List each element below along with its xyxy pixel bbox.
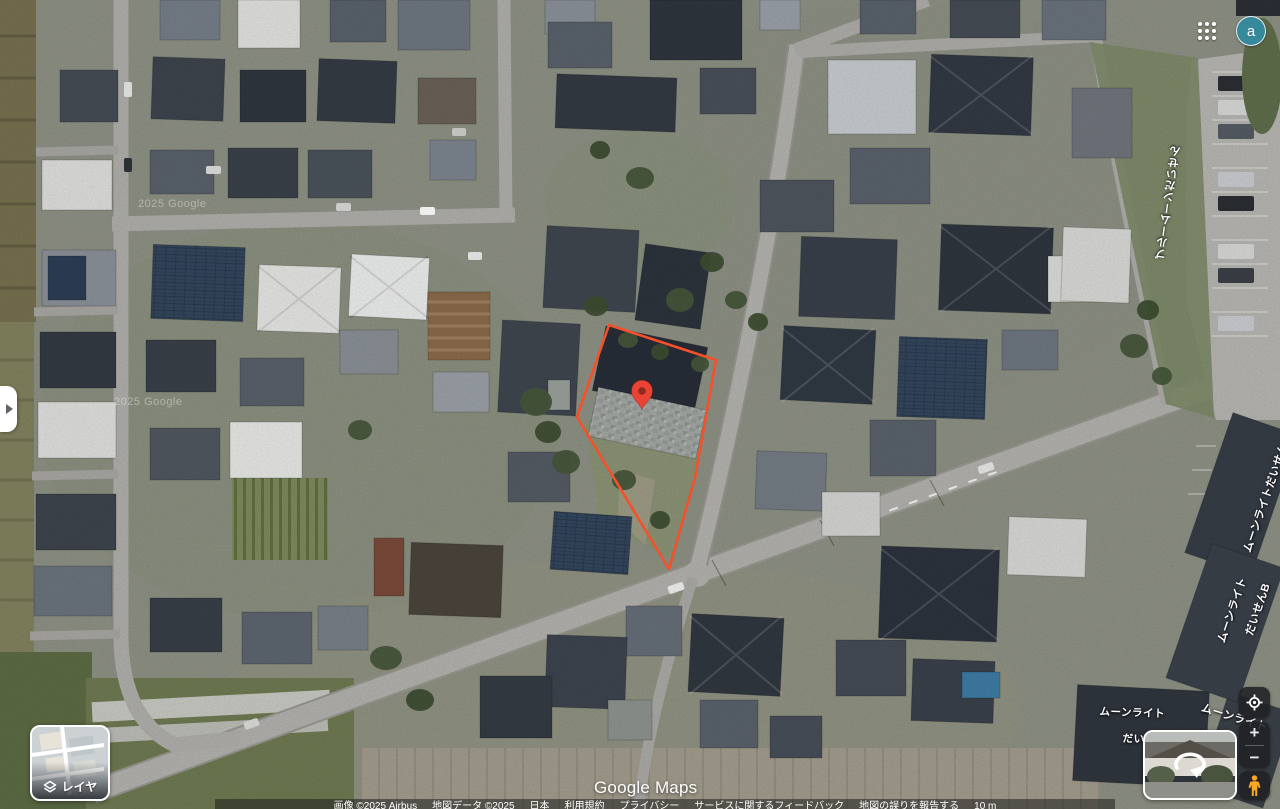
report-error-link[interactable]: 地図の誤りを報告する bbox=[859, 800, 959, 809]
imagery-credit: 画像 ©2025 Airbus bbox=[334, 800, 418, 809]
copyright-watermark: 2025 Google bbox=[138, 198, 207, 210]
map-data-credit: 地図データ ©2025 bbox=[432, 800, 514, 809]
google-apps-button[interactable] bbox=[1193, 17, 1221, 45]
my-location-icon bbox=[1246, 694, 1263, 711]
zoom-in-button[interactable]: + bbox=[1239, 722, 1270, 743]
apps-grid-icon bbox=[1197, 21, 1217, 41]
layers-button-caption: レイヤ bbox=[32, 762, 108, 799]
map-pin-dot bbox=[638, 387, 646, 395]
feedback-link[interactable]: サービスに関するフィードバック bbox=[694, 800, 844, 809]
google-maps-logo: Google Maps bbox=[594, 778, 697, 798]
layers-button-label: レイヤ bbox=[62, 780, 98, 794]
layers-button[interactable]: レイヤ bbox=[30, 725, 110, 801]
layers-icon bbox=[43, 780, 57, 794]
avatar-button[interactable]: a bbox=[1236, 16, 1266, 46]
zoom-control: + − bbox=[1239, 722, 1270, 768]
chevron-right-icon bbox=[6, 404, 13, 414]
privacy-link[interactable]: プライバシー bbox=[620, 800, 680, 809]
region-label: 日本 bbox=[530, 800, 550, 809]
zoom-out-button[interactable]: − bbox=[1239, 747, 1270, 768]
terms-link[interactable]: 利用規約 bbox=[565, 800, 605, 809]
attribution-bar: 画像 ©2025 Airbus 地図データ ©2025 日本 利用規約 プライバ… bbox=[215, 799, 1115, 809]
street-view-photo bbox=[1145, 732, 1235, 798]
copyright-watermark: 2025 Google bbox=[114, 396, 183, 408]
avatar-letter: a bbox=[1247, 23, 1255, 40]
my-location-button[interactable] bbox=[1239, 687, 1270, 718]
pegman-icon bbox=[1248, 775, 1261, 797]
pegman-button[interactable] bbox=[1239, 771, 1270, 800]
scale-label: 10 m bbox=[974, 800, 996, 809]
zoom-divider bbox=[1245, 745, 1264, 746]
street-view-thumbnail[interactable] bbox=[1143, 730, 1237, 800]
expand-side-panel-button[interactable] bbox=[0, 386, 17, 432]
google-maps-app: ブルームーンだいせん ムーンライトだいせんA ムーンライト だいせんB ムーンラ… bbox=[0, 0, 1280, 809]
